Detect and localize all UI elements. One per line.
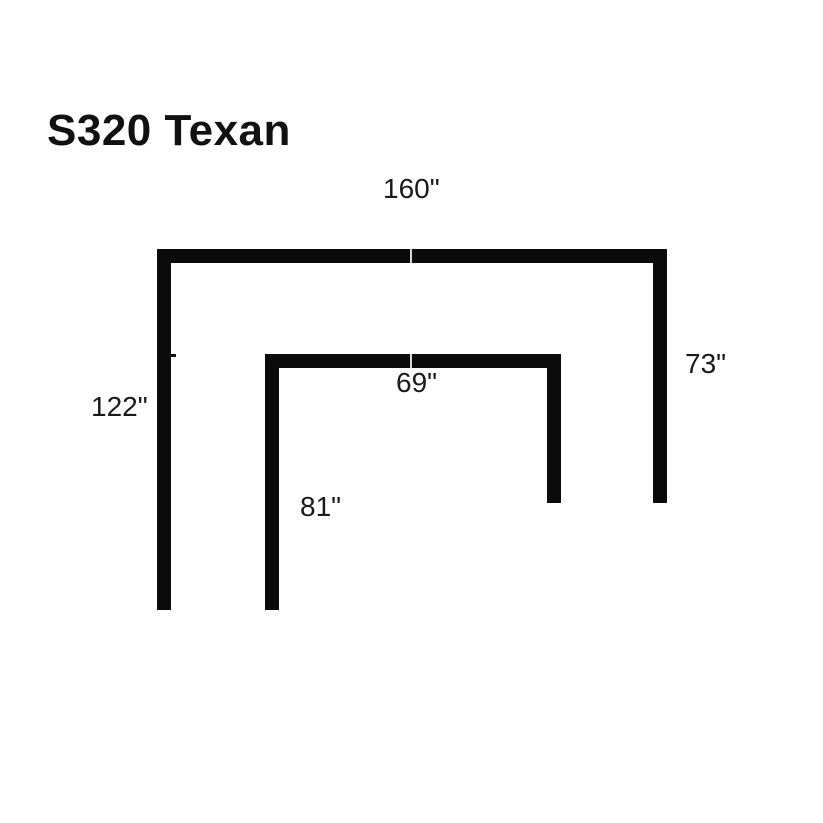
dimension-label-outer-right-depth: 73" <box>685 350 726 378</box>
outer-left-leg-joint-tick <box>171 354 176 357</box>
dimension-label-outer-left-depth: 122" <box>91 393 148 421</box>
inner-top-bar-seam-line <box>410 354 412 368</box>
outer-top-bar-seam-line <box>410 249 412 263</box>
outer-left-leg-bar <box>157 249 171 610</box>
outer-top-bar <box>157 249 667 263</box>
dimension-label-inner-width: 69" <box>396 369 437 397</box>
page-title: S320 Texan <box>47 109 291 153</box>
inner-right-leg-bar <box>547 354 561 503</box>
dimension-label-inner-left-depth: 81" <box>300 493 341 521</box>
dimension-label-outer-width: 160" <box>383 175 440 203</box>
inner-top-bar <box>265 354 561 368</box>
inner-left-leg-bar <box>265 354 279 610</box>
diagram-canvas: S320 Texan 160" 122" 73" 69" 81" <box>0 0 823 823</box>
outer-right-leg-bar <box>653 249 667 503</box>
